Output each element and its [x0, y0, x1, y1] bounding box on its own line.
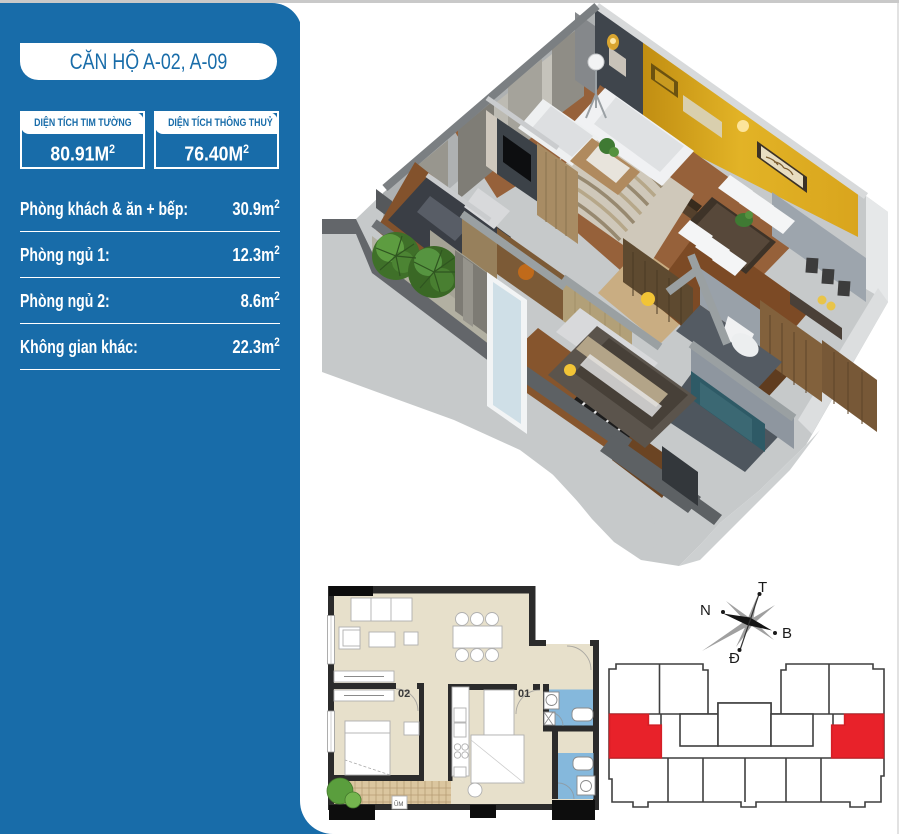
svg-text:T: T — [758, 579, 767, 596]
svg-text:02: 02 — [398, 688, 410, 700]
svg-text:B: B — [782, 625, 792, 642]
svg-text:Đ: Đ — [729, 650, 740, 667]
svg-text:ŨM: ŨM — [394, 801, 403, 808]
svg-text:N: N — [700, 602, 711, 619]
svg-text:01: 01 — [518, 688, 530, 700]
